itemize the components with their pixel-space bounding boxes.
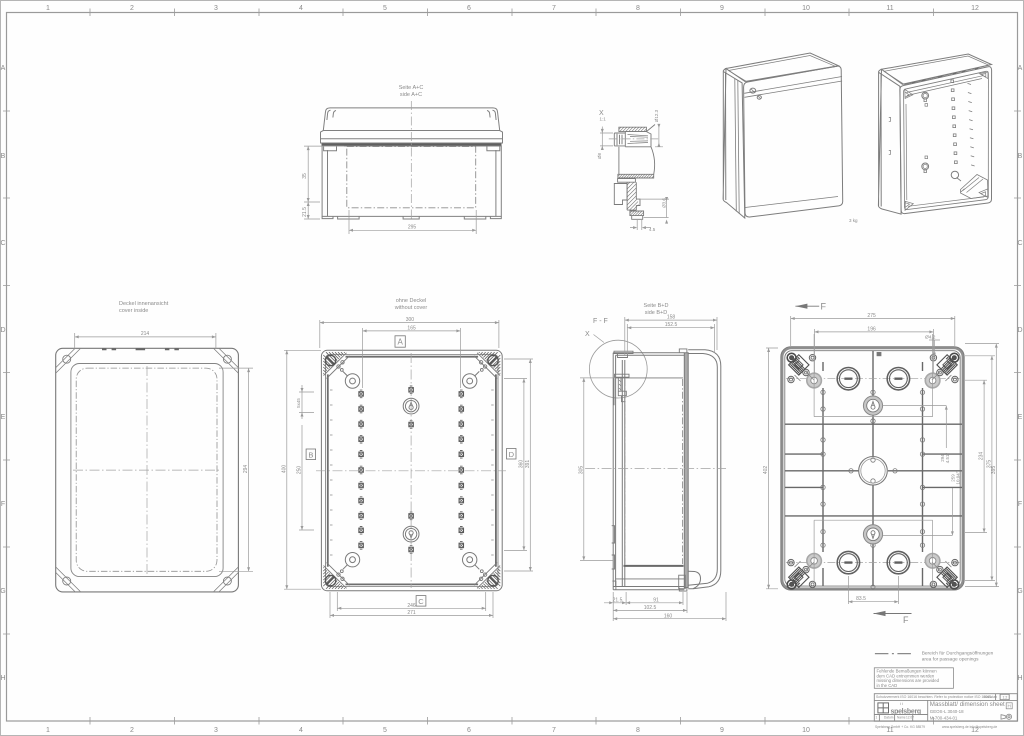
- svg-text:C: C: [1017, 240, 1022, 247]
- svg-text:E: E: [1, 414, 6, 421]
- svg-text:area for passage openings: area for passage openings: [922, 657, 979, 663]
- svg-text:402: 402: [763, 466, 769, 475]
- svg-text:7: 7: [552, 727, 556, 734]
- svg-text:Seite A+C: Seite A+C: [399, 85, 424, 91]
- svg-text:Ø3.6: Ø3.6: [662, 198, 667, 208]
- svg-text:D: D: [509, 450, 515, 459]
- svg-text:395: 395: [991, 466, 997, 475]
- svg-text:side A+C: side A+C: [400, 92, 422, 98]
- svg-text:21.5: 21.5: [613, 597, 623, 603]
- svg-text:F: F: [1018, 501, 1022, 508]
- svg-text:21.5: 21.5: [302, 207, 308, 217]
- svg-text:D: D: [0, 327, 5, 334]
- svg-text:without cover: without cover: [394, 305, 428, 311]
- svg-text:F: F: [821, 302, 827, 312]
- svg-text:Ø4.2: Ø4.2: [925, 335, 936, 341]
- svg-text:4: 4: [299, 727, 303, 734]
- svg-text:G: G: [1017, 588, 1022, 595]
- svg-text:294: 294: [243, 465, 249, 474]
- svg-text:3 kg: 3 kg: [849, 218, 858, 223]
- svg-text:5: 5: [383, 727, 387, 734]
- svg-text:6: 6: [467, 727, 471, 734]
- svg-text:91: 91: [653, 597, 659, 603]
- svg-text:12.07: 12.07: [906, 716, 914, 720]
- svg-text:Massblatt/ dimension sheet: Massblatt/ dimension sheet: [930, 701, 1005, 708]
- svg-text:side B+D: side B+D: [645, 310, 667, 316]
- svg-text:8: 8: [636, 727, 640, 734]
- svg-text:3: 3: [214, 727, 218, 734]
- svg-text:196: 196: [867, 326, 876, 332]
- svg-text:H: H: [1017, 675, 1022, 682]
- svg-text:1: 1: [876, 716, 878, 720]
- svg-text:Ø12.3: Ø12.3: [654, 109, 659, 122]
- svg-text:B: B: [1018, 153, 1023, 160]
- svg-text:Bereich für Durchgangsöffnunge: Bereich für Durchgangsöffnungen: [922, 651, 994, 657]
- svg-text:4.5: 4.5: [649, 227, 656, 232]
- svg-text:F: F: [903, 615, 909, 625]
- svg-text:12: 12: [971, 5, 979, 12]
- svg-text:246: 246: [407, 603, 416, 609]
- svg-text:1:1: 1:1: [600, 117, 607, 122]
- svg-text:152.5: 152.5: [665, 322, 678, 328]
- svg-text:Schutzvermerk ISO 16016 beacht: Schutzvermerk ISO 16016 beachten. Refer …: [876, 695, 992, 699]
- svg-text:A: A: [398, 338, 404, 347]
- svg-text:10: 10: [802, 5, 810, 12]
- svg-text:234: 234: [979, 452, 985, 461]
- svg-text:Datum: Datum: [884, 716, 894, 720]
- svg-text:6: 6: [467, 5, 471, 12]
- svg-text:1:2: 1:2: [1003, 695, 1008, 699]
- svg-text:D: D: [1017, 327, 1022, 334]
- svg-text:G: G: [0, 588, 5, 595]
- svg-text:M-700-434-01: M-700-434-01: [930, 715, 958, 720]
- svg-text:11: 11: [886, 5, 893, 12]
- svg-text:Maßstab: Maßstab: [984, 695, 998, 699]
- svg-text:2: 2: [130, 5, 134, 12]
- svg-text:cover inside: cover inside: [119, 308, 148, 314]
- svg-text:A: A: [1, 65, 6, 72]
- svg-text:5x45: 5x45: [296, 398, 301, 408]
- svg-text:9: 9: [720, 5, 724, 12]
- svg-text:A: A: [1018, 65, 1023, 72]
- svg-text:Spelsberg GmbH + Co. KG 58579: Spelsberg GmbH + Co. KG 58579: [875, 725, 925, 729]
- svg-text:391: 391: [525, 460, 531, 469]
- svg-text:5: 5: [383, 5, 387, 12]
- svg-text:C: C: [0, 240, 5, 247]
- svg-text:400: 400: [281, 465, 287, 474]
- svg-text:160: 160: [664, 613, 673, 619]
- svg-text:8: 8: [636, 5, 640, 12]
- svg-text:Deckel innenansicht: Deckel innenansicht: [119, 301, 169, 307]
- svg-text:275: 275: [867, 313, 876, 319]
- svg-text:4.51°: 4.51°: [945, 453, 950, 464]
- svg-text:B: B: [1, 153, 6, 160]
- svg-text:35: 35: [302, 173, 308, 179]
- svg-text:360: 360: [518, 460, 524, 469]
- svg-text:spelsberg: spelsberg: [891, 709, 921, 716]
- svg-text:1: 1: [46, 5, 50, 12]
- svg-text:Ø8: Ø8: [597, 153, 602, 160]
- svg-text:in the CAD: in the CAD: [877, 683, 898, 688]
- svg-text:1: 1: [46, 727, 50, 734]
- svg-text:295: 295: [408, 225, 417, 231]
- svg-text:X: X: [585, 331, 590, 338]
- svg-text:H: H: [1008, 704, 1011, 709]
- svg-text:271: 271: [407, 610, 416, 616]
- svg-text:10: 10: [802, 727, 810, 734]
- svg-text:B: B: [308, 450, 313, 459]
- svg-text:214: 214: [141, 331, 150, 337]
- svg-text:ohne Deckel: ohne Deckel: [396, 298, 427, 304]
- svg-text:305: 305: [578, 466, 584, 475]
- svg-text:F: F: [1, 501, 5, 508]
- svg-text:9: 9: [720, 727, 724, 734]
- svg-text:Seite B+D: Seite B+D: [644, 303, 669, 309]
- svg-text:250: 250: [297, 466, 303, 475]
- svg-text:300: 300: [406, 317, 415, 323]
- svg-text:3: 3: [214, 5, 218, 12]
- svg-text:C: C: [418, 597, 424, 606]
- svg-text:E: E: [1018, 414, 1023, 421]
- svg-text:i i: i i: [900, 701, 903, 706]
- svg-text:10.04°: 10.04°: [956, 471, 961, 484]
- svg-text:4: 4: [299, 5, 303, 12]
- svg-text:H: H: [0, 675, 5, 682]
- svg-text:2: 2: [130, 727, 134, 734]
- svg-text:83.5: 83.5: [856, 596, 866, 602]
- svg-text:GEOS-L 3040-18: GEOS-L 3040-18: [930, 709, 964, 714]
- svg-text:Name: Name: [897, 716, 906, 720]
- svg-text:102.5: 102.5: [644, 605, 657, 611]
- svg-text:www.spelsberg.de info@spelsbe: www.spelsberg.de info@spelsberg.de: [942, 725, 997, 729]
- svg-text:165: 165: [407, 325, 416, 331]
- svg-text:F - F: F - F: [593, 318, 608, 325]
- svg-text:158: 158: [667, 315, 676, 321]
- svg-text:7: 7: [552, 5, 556, 12]
